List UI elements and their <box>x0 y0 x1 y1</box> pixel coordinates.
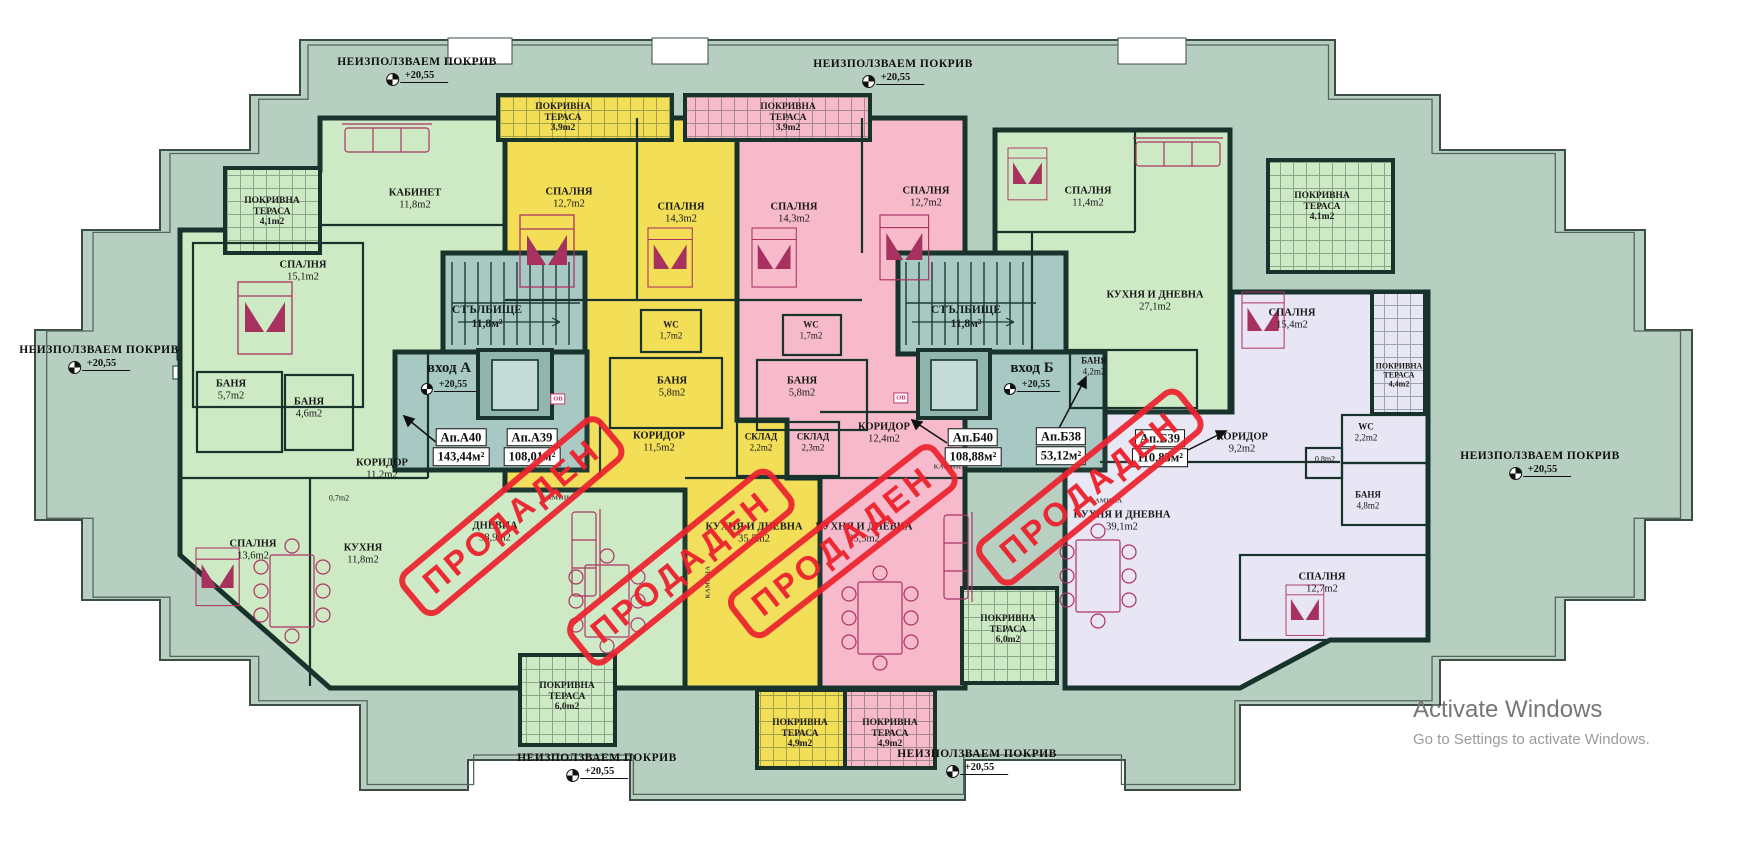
room-label: СПАЛНЯ14,3m2 <box>658 202 705 227</box>
room-label: КОРИДОР12,4m2 <box>858 422 910 447</box>
stairwell-left-label: СТЪЛБИЩЕ11,8м² <box>452 304 522 332</box>
room-label: БАНЯ4,8m2 <box>1355 489 1381 510</box>
room-label: КУХНЯ И ДНЕВНА27,1m2 <box>1106 290 1203 315</box>
room-label: 0,8m2 <box>1315 454 1335 463</box>
benchmark-icon <box>421 383 433 395</box>
terrace-label: ПОКРИВНА ТЕРАСА6,0m2 <box>966 614 1050 646</box>
ov-label: ОВ <box>550 393 565 404</box>
activate-windows-subtext: Go to Settings to activate Windows. <box>1413 731 1650 748</box>
room-label: СПАЛНЯ15,1m2 <box>280 260 327 285</box>
terrace-label: ПОКРИВНА ТЕРАСА3,9m2 <box>746 102 830 134</box>
room-label: СПАЛНЯ12,7m2 <box>1299 572 1346 597</box>
room-label: КАБИНЕТ11,8m2 <box>389 188 441 213</box>
terrace-label: ПОКРИВНА ТЕРАСА6,0m2 <box>525 681 609 713</box>
terrace-label: ПОКРИВНА ТЕРАСА4,9m2 <box>758 718 842 750</box>
room-label: КОРИДОР11,2m2 <box>356 458 408 483</box>
room-label: СПАЛНЯ13,6m2 <box>230 539 277 564</box>
benchmark-icon <box>68 361 81 374</box>
benchmark-icon <box>1004 383 1016 395</box>
badge-ap-b40: Ап.Б40108,88м² <box>945 428 1002 466</box>
room-label: СПАЛНЯ14,3m2 <box>771 202 818 227</box>
unused-roof-note-left: НЕИЗПОЛЗВАЕМ ПОКРИВ +20,55 <box>19 344 179 376</box>
room-label: БАНЯ4,2m2 <box>1081 355 1107 376</box>
activate-windows-watermark: Activate Windows <box>1413 696 1602 724</box>
elevator-left <box>478 350 552 418</box>
benchmark-icon <box>946 765 959 778</box>
unused-roof-note-bottom-right: НЕИЗПОЛЗВАЕМ ПОКРИВ +20,55 <box>897 748 1057 780</box>
room-label: БАНЯ5,8m2 <box>787 376 817 401</box>
room-label: 0,7m2 <box>329 493 349 502</box>
room-label: WC1,7m2 <box>660 319 683 340</box>
room-label: СКЛАД2,3m2 <box>797 431 829 452</box>
room-label: КОРИДОР9,2m2 <box>1216 432 1268 457</box>
benchmark-icon <box>1509 467 1522 480</box>
room-label: СПАЛНЯ12,7m2 <box>546 187 593 212</box>
benchmark-icon <box>566 769 579 782</box>
unused-roof-note-bottom-left: НЕИЗПОЛЗВАЕМ ПОКРИВ +20,55 <box>517 752 677 784</box>
terrace-label: ПОКРИВНА ТЕРАСА4,4m2 <box>1373 363 1425 390</box>
terrace-label: ПОКРИВНА ТЕРАСА4,1m2 <box>1280 191 1364 223</box>
terrace-label: ПОКРИВНА ТЕРАСА4,1m2 <box>230 196 314 228</box>
room-label: СПАЛНЯ12,7m2 <box>903 186 950 211</box>
entrance-a-label: вход А +20,55 <box>421 360 477 397</box>
benchmark-icon <box>386 73 399 86</box>
ov-label: ОВ <box>893 392 908 403</box>
room-label: КУХНЯ11,8m2 <box>344 543 382 568</box>
benchmark-icon <box>862 75 875 88</box>
unused-roof-note-top-left: НЕИЗПОЛЗВАЕМ ПОКРИВ +20,55 <box>337 56 497 88</box>
room-label: КОРИДОР11,5m2 <box>633 431 685 456</box>
terrace-label: ПОКРИВНА ТЕРАСА3,9m2 <box>521 102 605 134</box>
unused-roof-note-top-right: НЕИЗПОЛЗВАЕМ ПОКРИВ +20,55 <box>813 58 973 90</box>
room-label: WC2,2m2 <box>1355 421 1378 442</box>
stairwell-right-label: СТЪЛБИЩЕ11,8м² <box>931 304 1001 332</box>
room-label: СКЛАД2,2m2 <box>745 431 777 452</box>
badge-ap-a40: Ап.А40143,44м² <box>433 428 490 466</box>
terrace-label: ПОКРИВНА ТЕРАСА4,9m2 <box>848 718 932 750</box>
room-label: WC1,7m2 <box>800 319 823 340</box>
unused-roof-note-right: НЕИЗПОЛЗВАЕМ ПОКРИВ +20,55 <box>1460 450 1620 482</box>
room-label: БАНЯ5,8m2 <box>657 376 687 401</box>
room-label: БАНЯ5,7m2 <box>216 379 246 404</box>
room-label: СПАЛНЯ15,4m2 <box>1269 308 1316 333</box>
room-label: СПАЛНЯ11,4m2 <box>1065 186 1112 211</box>
room-label: БАНЯ4,6m2 <box>294 397 324 422</box>
elevator-right <box>918 350 990 418</box>
entrance-b-label: вход Б +20,55 <box>1004 360 1060 397</box>
floor-plan-page: { "plan": { "unused_roof": { "label": "Н… <box>0 0 1739 855</box>
